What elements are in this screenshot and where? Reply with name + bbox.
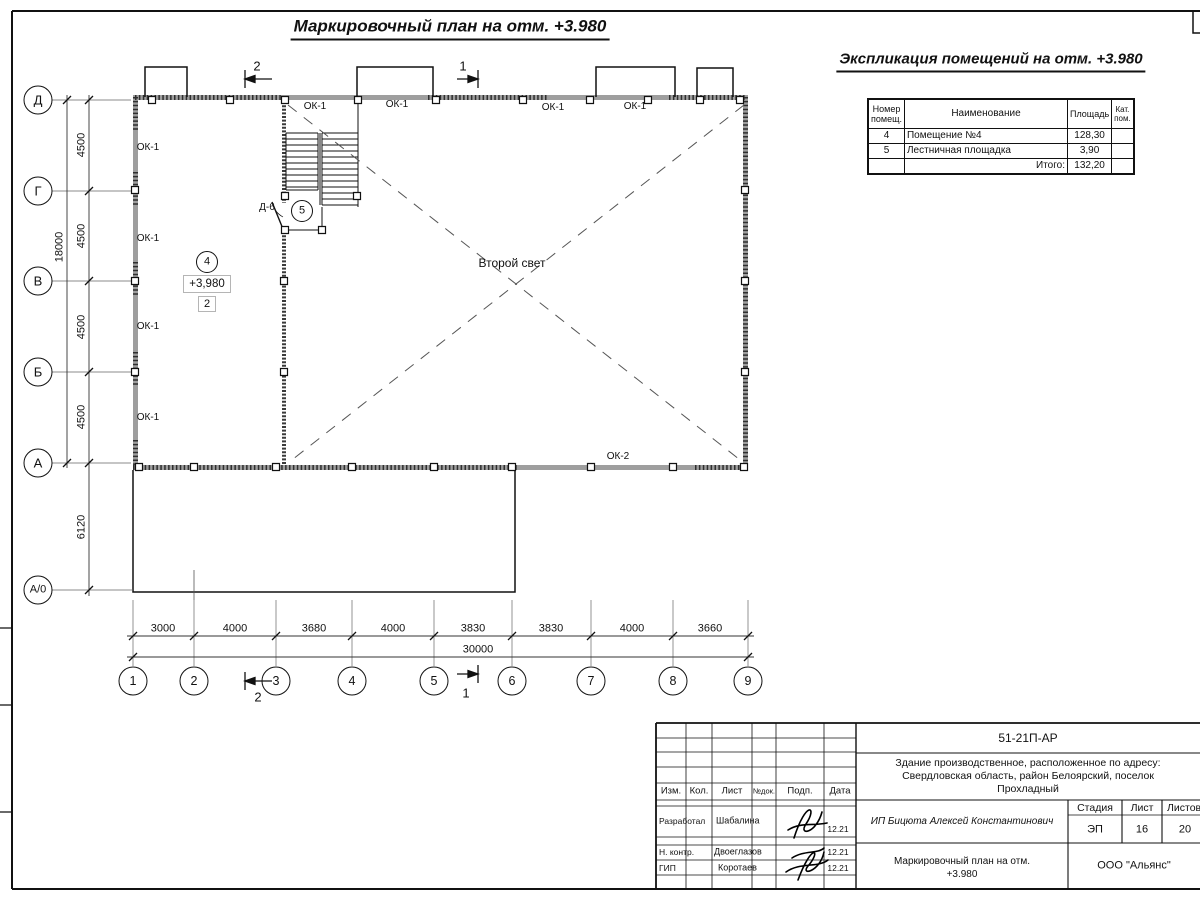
section-mark-2-top: 2	[253, 60, 260, 73]
grid-bubble-7: 7	[588, 675, 595, 688]
table-total-row: Итого: 132,20	[868, 158, 1134, 174]
stamp-header-data: Дата	[829, 786, 850, 796]
window-label-ok1: ОК-1	[137, 413, 160, 423]
explication-title: Экспликация помещений на отм. +3.980	[836, 52, 1145, 73]
section-marks	[245, 70, 478, 690]
window-label-ok1: ОК-1	[137, 322, 160, 332]
sheets-header: Листов	[1167, 803, 1200, 814]
object-description-line2: Свердловская область, район Белоярский, …	[902, 771, 1154, 782]
room-area: 128,30	[1067, 128, 1111, 143]
window-label-ok1: ОК-1	[137, 234, 160, 244]
grid-bubble-3: 3	[273, 675, 280, 688]
stamp-header-izm: Изм.	[661, 786, 681, 796]
room-name: Помещение №4	[904, 128, 1067, 143]
sheet-value: 16	[1136, 825, 1148, 836]
dim-label: 4500	[77, 315, 88, 339]
sig-name: Двоеглазов	[714, 848, 762, 857]
object-description-line3: Прохладный	[997, 784, 1059, 795]
window-label-ok2: ОК-2	[607, 452, 630, 462]
window-label-ok1: ОК-1	[137, 143, 160, 153]
roof-projections	[145, 67, 733, 97]
dim-label: 3000	[151, 624, 175, 635]
dimension-lines	[67, 95, 754, 657]
table-row: 5 Лестничная площадка 3,90	[868, 143, 1134, 158]
window-label-ok1: ОК-1	[386, 100, 409, 110]
grid-bubble-8: 8	[670, 675, 677, 688]
axis-label-b: Б	[34, 366, 43, 379]
sig-date: 12.21	[827, 825, 848, 834]
annex-outline	[133, 470, 515, 592]
explication-table: Номерпомещ. Наименование Площадь Кат.пом…	[867, 98, 1135, 175]
sig-name: Шабалина	[716, 817, 759, 826]
dim-label: 3830	[461, 624, 485, 635]
stamp-header-podp: Подп.	[787, 786, 812, 796]
sig-role: ГИП	[659, 864, 676, 873]
window-label-ok1: ОК-1	[304, 102, 327, 112]
section-mark-1-top: 1	[459, 60, 466, 73]
room-tags	[197, 201, 313, 273]
grid-bubble-4: 4	[349, 675, 356, 688]
room-name: Лестничная площадка	[904, 143, 1067, 158]
table-row: 4 Помещение №4 128,30	[868, 128, 1134, 143]
col-header-number: Номерпомещ.	[868, 99, 904, 128]
total-value: 132,20	[1067, 158, 1111, 174]
stage-header: Стадия	[1077, 803, 1113, 814]
void-cross-dashes	[288, 105, 744, 463]
sig-role: Н. контр.	[659, 848, 694, 857]
dim-total-label: 30000	[463, 645, 494, 656]
section-mark-1-bottom: 1	[462, 687, 469, 700]
col-header-name: Наименование	[904, 99, 1067, 128]
stamp-header-ndoc: №док.	[753, 787, 775, 795]
axis-label-g: Г	[34, 185, 41, 198]
axis-extension-lines	[52, 100, 748, 666]
dim-label: 3830	[539, 624, 563, 635]
col-header-category: Кат.пом.	[1112, 99, 1134, 128]
dim-label: 3660	[698, 624, 722, 635]
elevation-label: +3,980	[183, 275, 231, 293]
room-tag-5: 5	[299, 206, 305, 217]
dimension-ticks	[63, 96, 752, 661]
room-category	[1112, 128, 1134, 143]
dim-label: 4500	[77, 405, 88, 429]
grid-bubble-1: 1	[130, 675, 137, 688]
sheets-value: 20	[1179, 825, 1191, 836]
room-number: 4	[868, 128, 904, 143]
object-description-line1: Здание производственное, расположенное п…	[895, 758, 1160, 769]
total-label: Итого:	[904, 158, 1067, 174]
window-label-ok1: ОК-1	[542, 103, 565, 113]
room-tag-4: 4	[204, 257, 210, 268]
section-mark-2-bottom: 2	[254, 691, 261, 704]
company-name: ООО "Альянс"	[1097, 861, 1171, 872]
stamp-header-kol: Кол.	[690, 786, 709, 796]
axis-label-v: В	[34, 275, 43, 288]
sig-date: 12.21	[827, 848, 848, 857]
dim-total-label: 18000	[55, 232, 66, 263]
room-number: 5	[868, 143, 904, 158]
client-name: ИП Бицюта Алексей Константинович	[871, 817, 1054, 827]
grid-bubble-9: 9	[745, 675, 752, 688]
door-label: Д-6	[259, 203, 275, 213]
dim-label: 4000	[223, 624, 247, 635]
stage-value: ЭП	[1087, 825, 1103, 836]
dim-label: 4500	[77, 224, 88, 248]
sig-role: Разработал	[659, 817, 705, 826]
window-label-ok1: ОК-1	[624, 102, 647, 112]
sig-date: 12.21	[827, 864, 848, 873]
room-area: 3,90	[1067, 143, 1111, 158]
drawing-name-line2: +3.980	[947, 870, 978, 880]
grid-bubble-6: 6	[509, 675, 516, 688]
drawing-name-line1: Маркировочный план на отм.	[894, 857, 1030, 867]
axis-label-d: Д	[34, 94, 43, 107]
grid-bubble-2: 2	[191, 675, 198, 688]
dim-label: 4000	[620, 624, 644, 635]
dim-label: 3680	[302, 624, 326, 635]
document-code: 51-21П-АР	[998, 732, 1057, 744]
stamp-header-list: Лист	[722, 786, 743, 796]
plan-title: Маркировочный план на отм. +3.980	[291, 18, 610, 41]
dim-label: 4000	[381, 624, 405, 635]
sheet-header: Лист	[1131, 803, 1154, 814]
drawing-sheet: { "plan_title": "Маркировочный план на о…	[0, 0, 1200, 900]
axis-label-a0: А/0	[30, 585, 47, 596]
col-header-area: Площадь	[1067, 99, 1111, 128]
dim-label: 6120	[77, 515, 88, 539]
dim-label: 4500	[77, 133, 88, 157]
grid-bubble-5: 5	[431, 675, 438, 688]
second-light-label: Второй свет	[478, 257, 545, 269]
floor-number-box: 2	[198, 296, 216, 312]
sig-name: Коротаев	[718, 864, 757, 873]
axis-label-a: А	[34, 457, 43, 470]
room-category	[1112, 143, 1134, 158]
